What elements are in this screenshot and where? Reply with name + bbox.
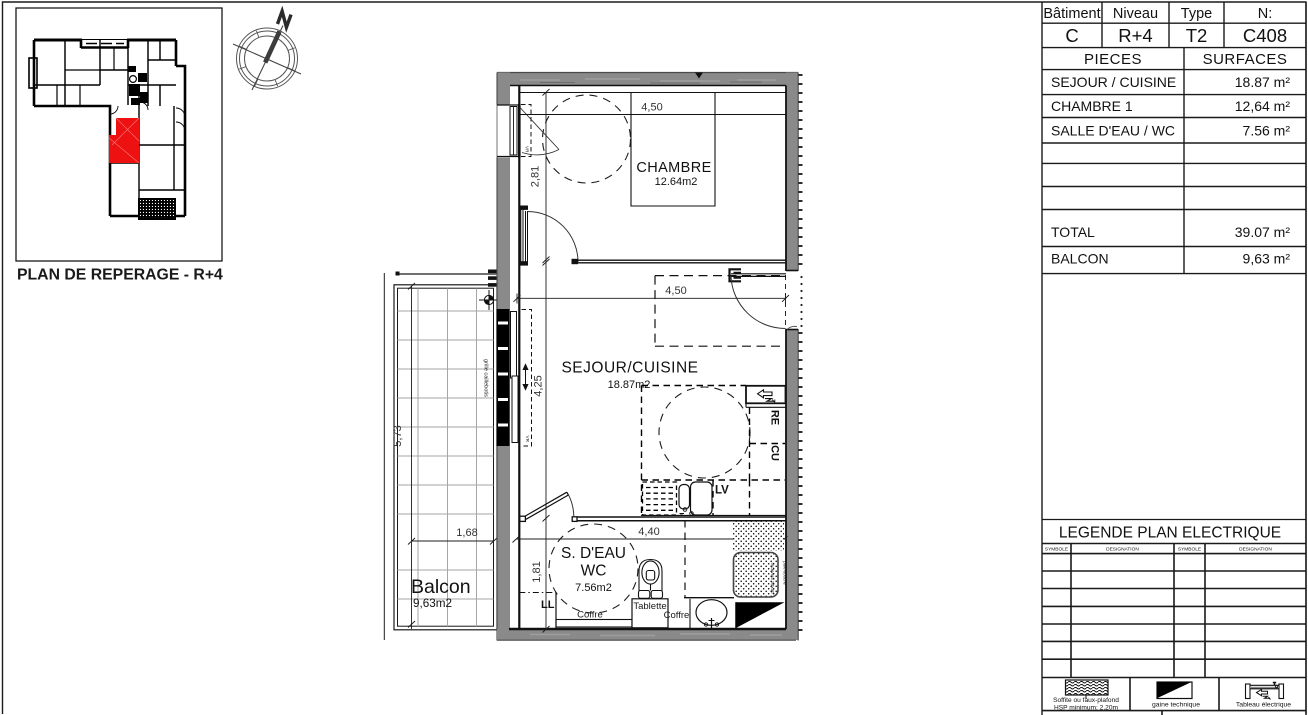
svg-text:receveur 90x90: receveur 90x90 [770,562,775,594]
svg-text:Niveau: Niveau [1113,6,1158,22]
svg-text:Coffre: Coffre [664,610,690,621]
svg-text:5,73: 5,73 [392,425,404,446]
svg-text:4,50: 4,50 [665,285,686,297]
svg-text:C: C [1065,25,1078,46]
svg-text:12.64m2: 12.64m2 [655,176,698,188]
svg-text:7.56 m²: 7.56 m² [1243,123,1291,139]
svg-text:Soffite ou faux-plafond: Soffite ou faux-plafond [1053,697,1119,704]
svg-text:LEGENDE PLAN ELECTRIQUE: LEGENDE PLAN ELECTRIQUE [1059,525,1281,542]
svg-text:CU: CU [769,445,781,461]
svg-text:gaine technique: gaine technique [1152,702,1200,709]
svg-text:2,81: 2,81 [530,166,542,187]
svg-text:N:: N: [1258,6,1273,22]
svg-text:9,63 m²: 9,63 m² [1243,251,1291,267]
svg-text:Balcon: Balcon [411,576,471,598]
svg-text:BALCON: BALCON [1051,251,1109,267]
svg-text:1,68: 1,68 [456,527,477,539]
svg-text:pare-douche: pare-douche [783,561,788,585]
svg-text:Type: Type [1181,6,1212,22]
svg-text:Bâtiment: Bâtiment [1043,6,1100,22]
svg-text:CHAMBRE: CHAMBRE [636,160,711,176]
svg-text:LL: LL [541,599,555,611]
svg-text:VR: VR [525,146,530,153]
svg-text:12,64 m²: 12,64 m² [1235,98,1291,114]
svg-text:SYMBOLE: SYMBOLE [1045,547,1068,553]
svg-text:4,25: 4,25 [533,375,545,396]
svg-text:SYMBOLE: SYMBOLE [1178,547,1201,553]
svg-text:PLAN DE REPERAGE - R+4: PLAN DE REPERAGE - R+4 [17,267,223,284]
svg-text:LV: LV [715,485,729,497]
svg-text:T2: T2 [1186,25,1208,46]
svg-text:TOTAL: TOTAL [1051,224,1095,240]
svg-text:RE: RE [769,410,781,425]
svg-text:SURFACES: SURFACES [1203,51,1288,68]
svg-text:18.87 m²: 18.87 m² [1235,74,1291,90]
svg-text:DESIGNATION: DESIGNATION [1239,547,1272,553]
svg-text:7.56m2: 7.56m2 [575,582,612,594]
svg-text:Tableau électrique: Tableau électrique [1236,702,1291,709]
svg-text:grille caillebotis: grille caillebotis [483,359,489,397]
svg-text:CHAMBRE 1: CHAMBRE 1 [1051,98,1133,114]
svg-text:1,81: 1,81 [531,561,543,582]
svg-text:Coffre: Coffre [577,610,603,621]
svg-text:C408: C408 [1243,25,1287,46]
svg-text:39.07 m²: 39.07 m² [1235,224,1291,240]
svg-text:DESIGNATION: DESIGNATION [1106,547,1139,553]
svg-text:S. D'EAU: S. D'EAU [561,545,626,562]
svg-text:4,40: 4,40 [638,526,659,538]
svg-text:WC: WC [581,563,607,580]
svg-text:HSP minimum; 2,20m: HSP minimum; 2,20m [1054,705,1119,712]
svg-text:SEJOUR / CUISINE: SEJOUR / CUISINE [1051,74,1176,90]
svg-text:R+4: R+4 [1118,25,1152,46]
svg-text:Tablette: Tablette [633,601,666,612]
svg-text:SALLE D'EAU / WC: SALLE D'EAU / WC [1051,123,1175,139]
svg-text:VR: VR [525,436,530,443]
svg-text:PIECES: PIECES [1084,51,1142,68]
svg-text:SEJOUR/CUISINE: SEJOUR/CUISINE [561,360,698,377]
svg-text:9,63m2: 9,63m2 [413,597,452,610]
svg-text:4,50: 4,50 [641,102,662,114]
